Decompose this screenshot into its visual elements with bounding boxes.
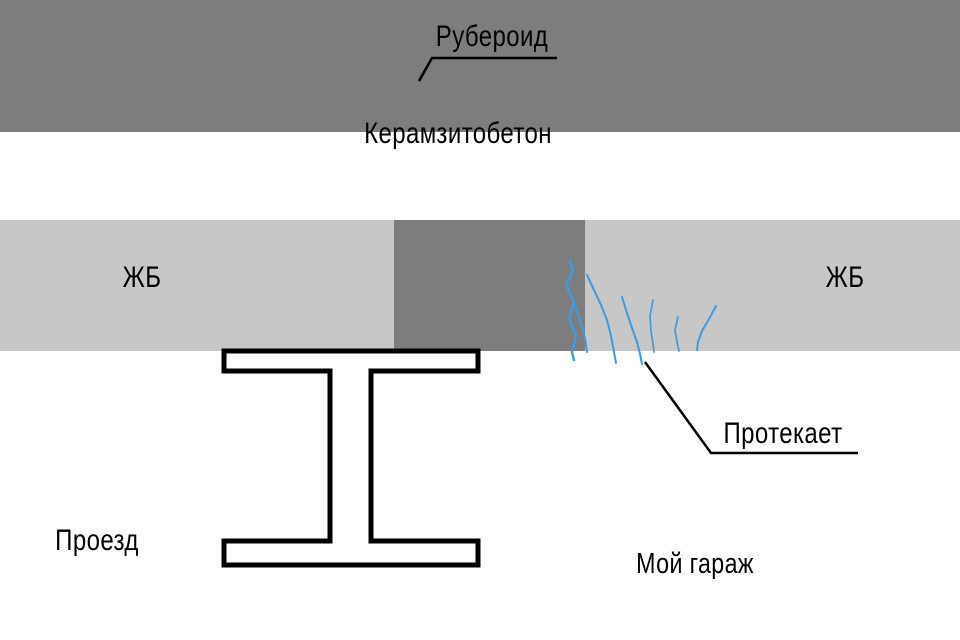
garage-label: Мой гараж [636, 550, 754, 579]
slab-right-region [585, 220, 960, 351]
leak-label: Протекает [723, 419, 842, 449]
i-beam-shape [224, 351, 478, 565]
insulation-layer-label: Керамзитобетон [364, 119, 552, 149]
slab-right-label: ЖБ [826, 263, 865, 293]
slab-left-region [0, 220, 394, 351]
driveway-label: Проезд [55, 526, 139, 556]
slab-left-label: ЖБ [123, 263, 162, 293]
roof-membrane-label: Рубероид [436, 22, 548, 52]
insulation-column-region [394, 220, 585, 351]
diagram-canvas: Рубероид Керамзитобетон ЖБ ЖБ Протекает … [0, 0, 960, 640]
